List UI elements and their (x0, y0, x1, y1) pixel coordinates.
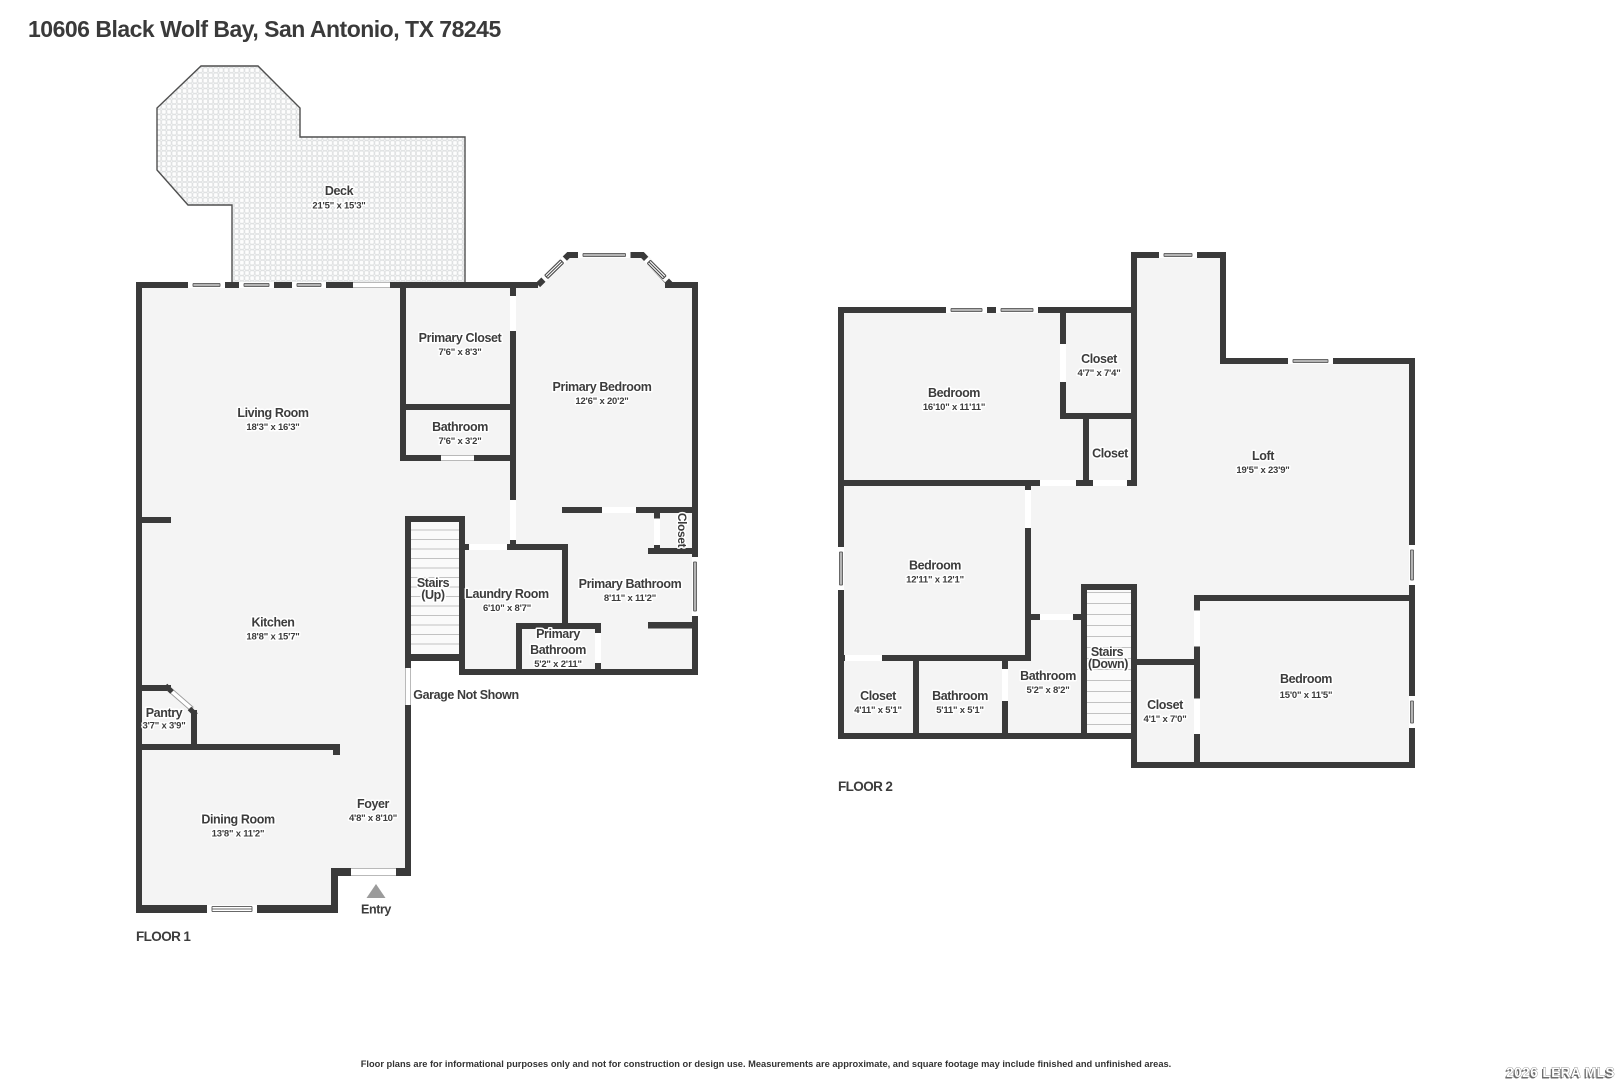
svg-text:Floor plans are for informatio: Floor plans are for informational purpos… (361, 1059, 1172, 1069)
svg-text:18'3" x 16'3": 18'3" x 16'3" (246, 422, 299, 433)
svg-text:5'2" x 8'2": 5'2" x 8'2" (1026, 685, 1069, 696)
svg-text:Bedroom: Bedroom (928, 386, 980, 400)
svg-text:Closet: Closet (1147, 698, 1184, 712)
svg-text:Bathroom: Bathroom (932, 689, 988, 703)
svg-text:Loft: Loft (1252, 449, 1275, 463)
svg-text:16'10" x 11'11": 16'10" x 11'11" (923, 402, 985, 413)
svg-text:Bathroom: Bathroom (432, 420, 488, 434)
svg-text:Pantry: Pantry (146, 706, 183, 720)
svg-text:12'11" x 12'1": 12'11" x 12'1" (906, 575, 964, 586)
svg-text:4'1" x 7'0": 4'1" x 7'0" (1143, 714, 1186, 725)
svg-text:FLOOR 1: FLOOR 1 (136, 929, 191, 944)
svg-text:Deck: Deck (325, 184, 354, 198)
svg-text:3'7" x 3'9": 3'7" x 3'9" (142, 721, 185, 732)
svg-text:Dining Room: Dining Room (201, 813, 275, 827)
svg-text:5'2" x 2'11": 5'2" x 2'11" (534, 659, 582, 670)
svg-text:Entry: Entry (361, 903, 391, 917)
svg-text:4'7" x 7'4": 4'7" x 7'4" (1077, 368, 1120, 379)
svg-text:(Up): (Up) (421, 588, 445, 602)
svg-text:5'11" x 5'1": 5'11" x 5'1" (936, 705, 984, 716)
svg-text:7'6" x 3'2": 7'6" x 3'2" (438, 436, 481, 447)
svg-text:4'8" x 8'10": 4'8" x 8'10" (349, 813, 397, 824)
svg-text:Primary Closet: Primary Closet (419, 331, 503, 345)
svg-text:2026 LERA MLS: 2026 LERA MLS (1506, 1065, 1615, 1080)
svg-text:Bathroom: Bathroom (530, 643, 586, 657)
svg-text:(Down): (Down) (1088, 657, 1128, 671)
svg-text:8'11" x 11'2": 8'11" x 11'2" (604, 593, 656, 604)
svg-text:Primary Bathroom: Primary Bathroom (579, 577, 682, 591)
svg-text:Bedroom: Bedroom (1280, 672, 1332, 686)
svg-text:Bedroom: Bedroom (909, 559, 961, 573)
svg-text:10606 Black Wolf Bay, San Anto: 10606 Black Wolf Bay, San Antonio, TX 78… (28, 16, 501, 42)
svg-text:Primary Bedroom: Primary Bedroom (553, 380, 652, 394)
svg-text:Laundry Room: Laundry Room (465, 587, 549, 601)
svg-text:21'5" x 15'3": 21'5" x 15'3" (312, 201, 365, 212)
svg-text:12'6" x 20'2": 12'6" x 20'2" (575, 396, 628, 407)
svg-text:Closet: Closet (860, 689, 897, 703)
svg-text:7'6" x 8'3": 7'6" x 8'3" (438, 347, 481, 358)
svg-text:19'5" x 23'9": 19'5" x 23'9" (1236, 465, 1289, 476)
svg-text:Living Room: Living Room (237, 406, 309, 420)
svg-text:18'8" x 15'7": 18'8" x 15'7" (246, 632, 299, 643)
svg-text:FLOOR 2: FLOOR 2 (838, 779, 892, 794)
svg-text:Garage Not Shown: Garage Not Shown (413, 688, 518, 702)
svg-text:6'10" x 8'7": 6'10" x 8'7" (483, 603, 531, 614)
svg-text:4'11" x 5'1": 4'11" x 5'1" (854, 705, 902, 716)
svg-text:Closet: Closet (675, 513, 689, 548)
svg-text:Bathroom: Bathroom (1020, 669, 1076, 683)
svg-text:15'0" x 11'5": 15'0" x 11'5" (1280, 690, 1333, 701)
svg-text:13'8" x 11'2": 13'8" x 11'2" (212, 829, 265, 840)
svg-text:Primary: Primary (536, 627, 580, 641)
svg-text:Foyer: Foyer (357, 797, 390, 811)
svg-text:Closet: Closet (1081, 352, 1118, 366)
svg-text:Closet: Closet (1092, 447, 1129, 461)
svg-text:Kitchen: Kitchen (251, 616, 294, 630)
